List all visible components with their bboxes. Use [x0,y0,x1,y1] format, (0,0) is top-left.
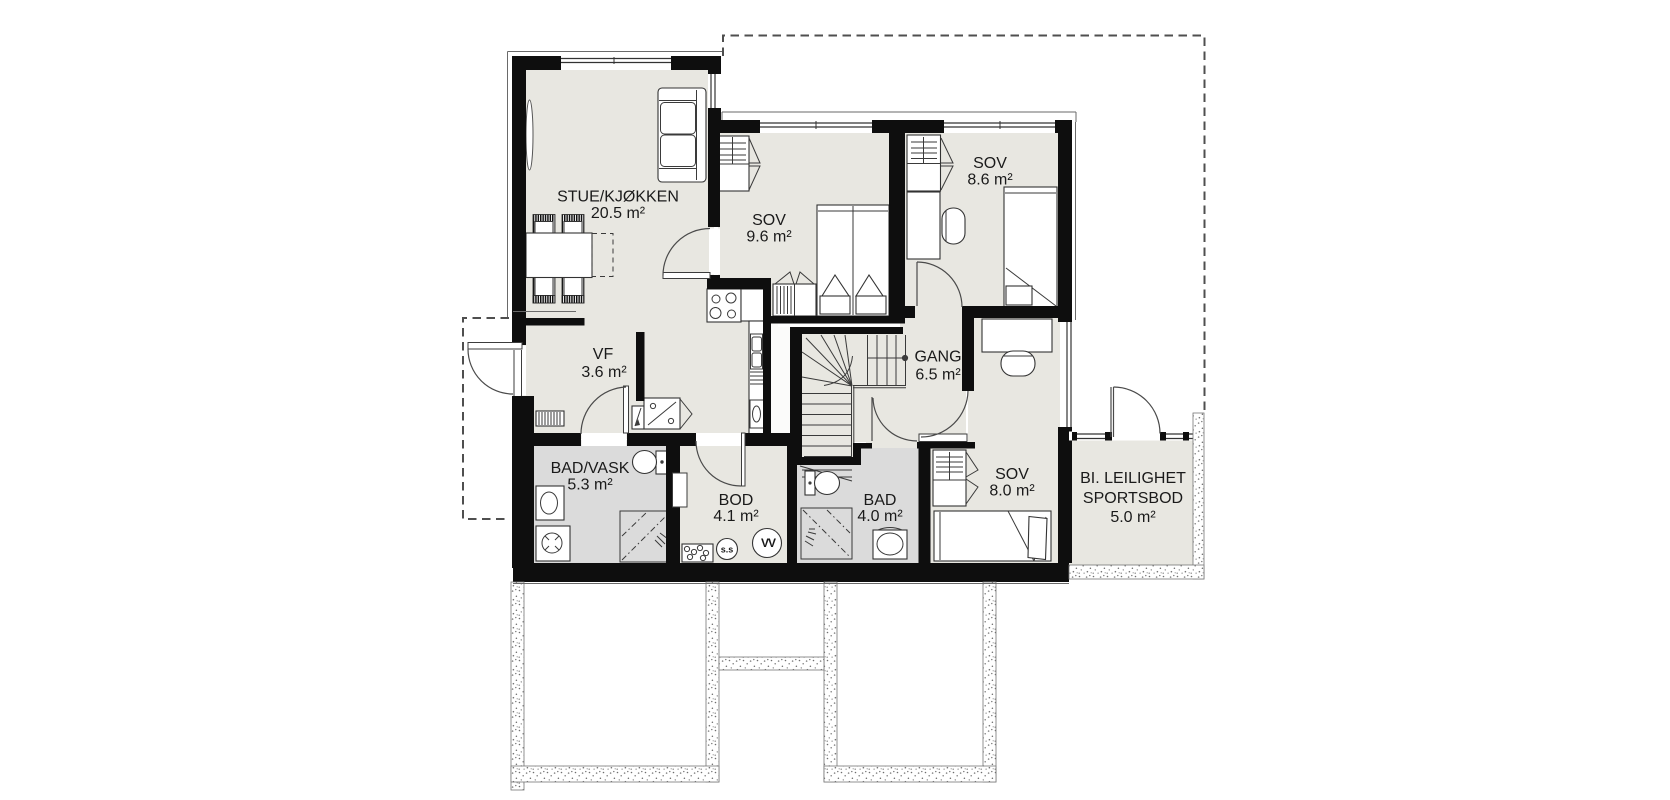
svg-text:6.5 m²: 6.5 m² [915,367,961,384]
svg-text:4.0 m²: 4.0 m² [857,508,903,525]
svg-text:3.6 m²: 3.6 m² [581,364,627,381]
svg-text:BI. LEILIGHET: BI. LEILIGHET [1080,470,1186,487]
svg-text:GANG: GANG [914,349,961,366]
svg-text:8.6 m²: 8.6 m² [967,172,1013,189]
svg-text:VV: VV [761,536,776,550]
svg-text:STUE/KJØKKEN: STUE/KJØKKEN [557,189,679,206]
svg-text:SOV: SOV [973,155,1007,172]
svg-text:VF: VF [593,346,614,363]
svg-text:SOV: SOV [995,466,1029,483]
svg-text:20.5 m²: 20.5 m² [591,205,646,222]
svg-text:9.6 m²: 9.6 m² [746,229,792,246]
svg-text:BAD/VASK: BAD/VASK [551,460,630,477]
svg-text:BAD: BAD [864,492,897,509]
svg-text:SOV: SOV [752,212,786,229]
svg-text:5.0 m²: 5.0 m² [1110,509,1156,526]
svg-text:s.s: s.s [721,545,734,555]
svg-text:5.3 m²: 5.3 m² [567,477,613,494]
svg-text:8.0 m²: 8.0 m² [989,483,1035,500]
svg-text:SPORTSBOD: SPORTSBOD [1083,490,1183,507]
svg-text:BOD: BOD [719,492,754,509]
svg-text:4.1 m²: 4.1 m² [713,508,759,525]
